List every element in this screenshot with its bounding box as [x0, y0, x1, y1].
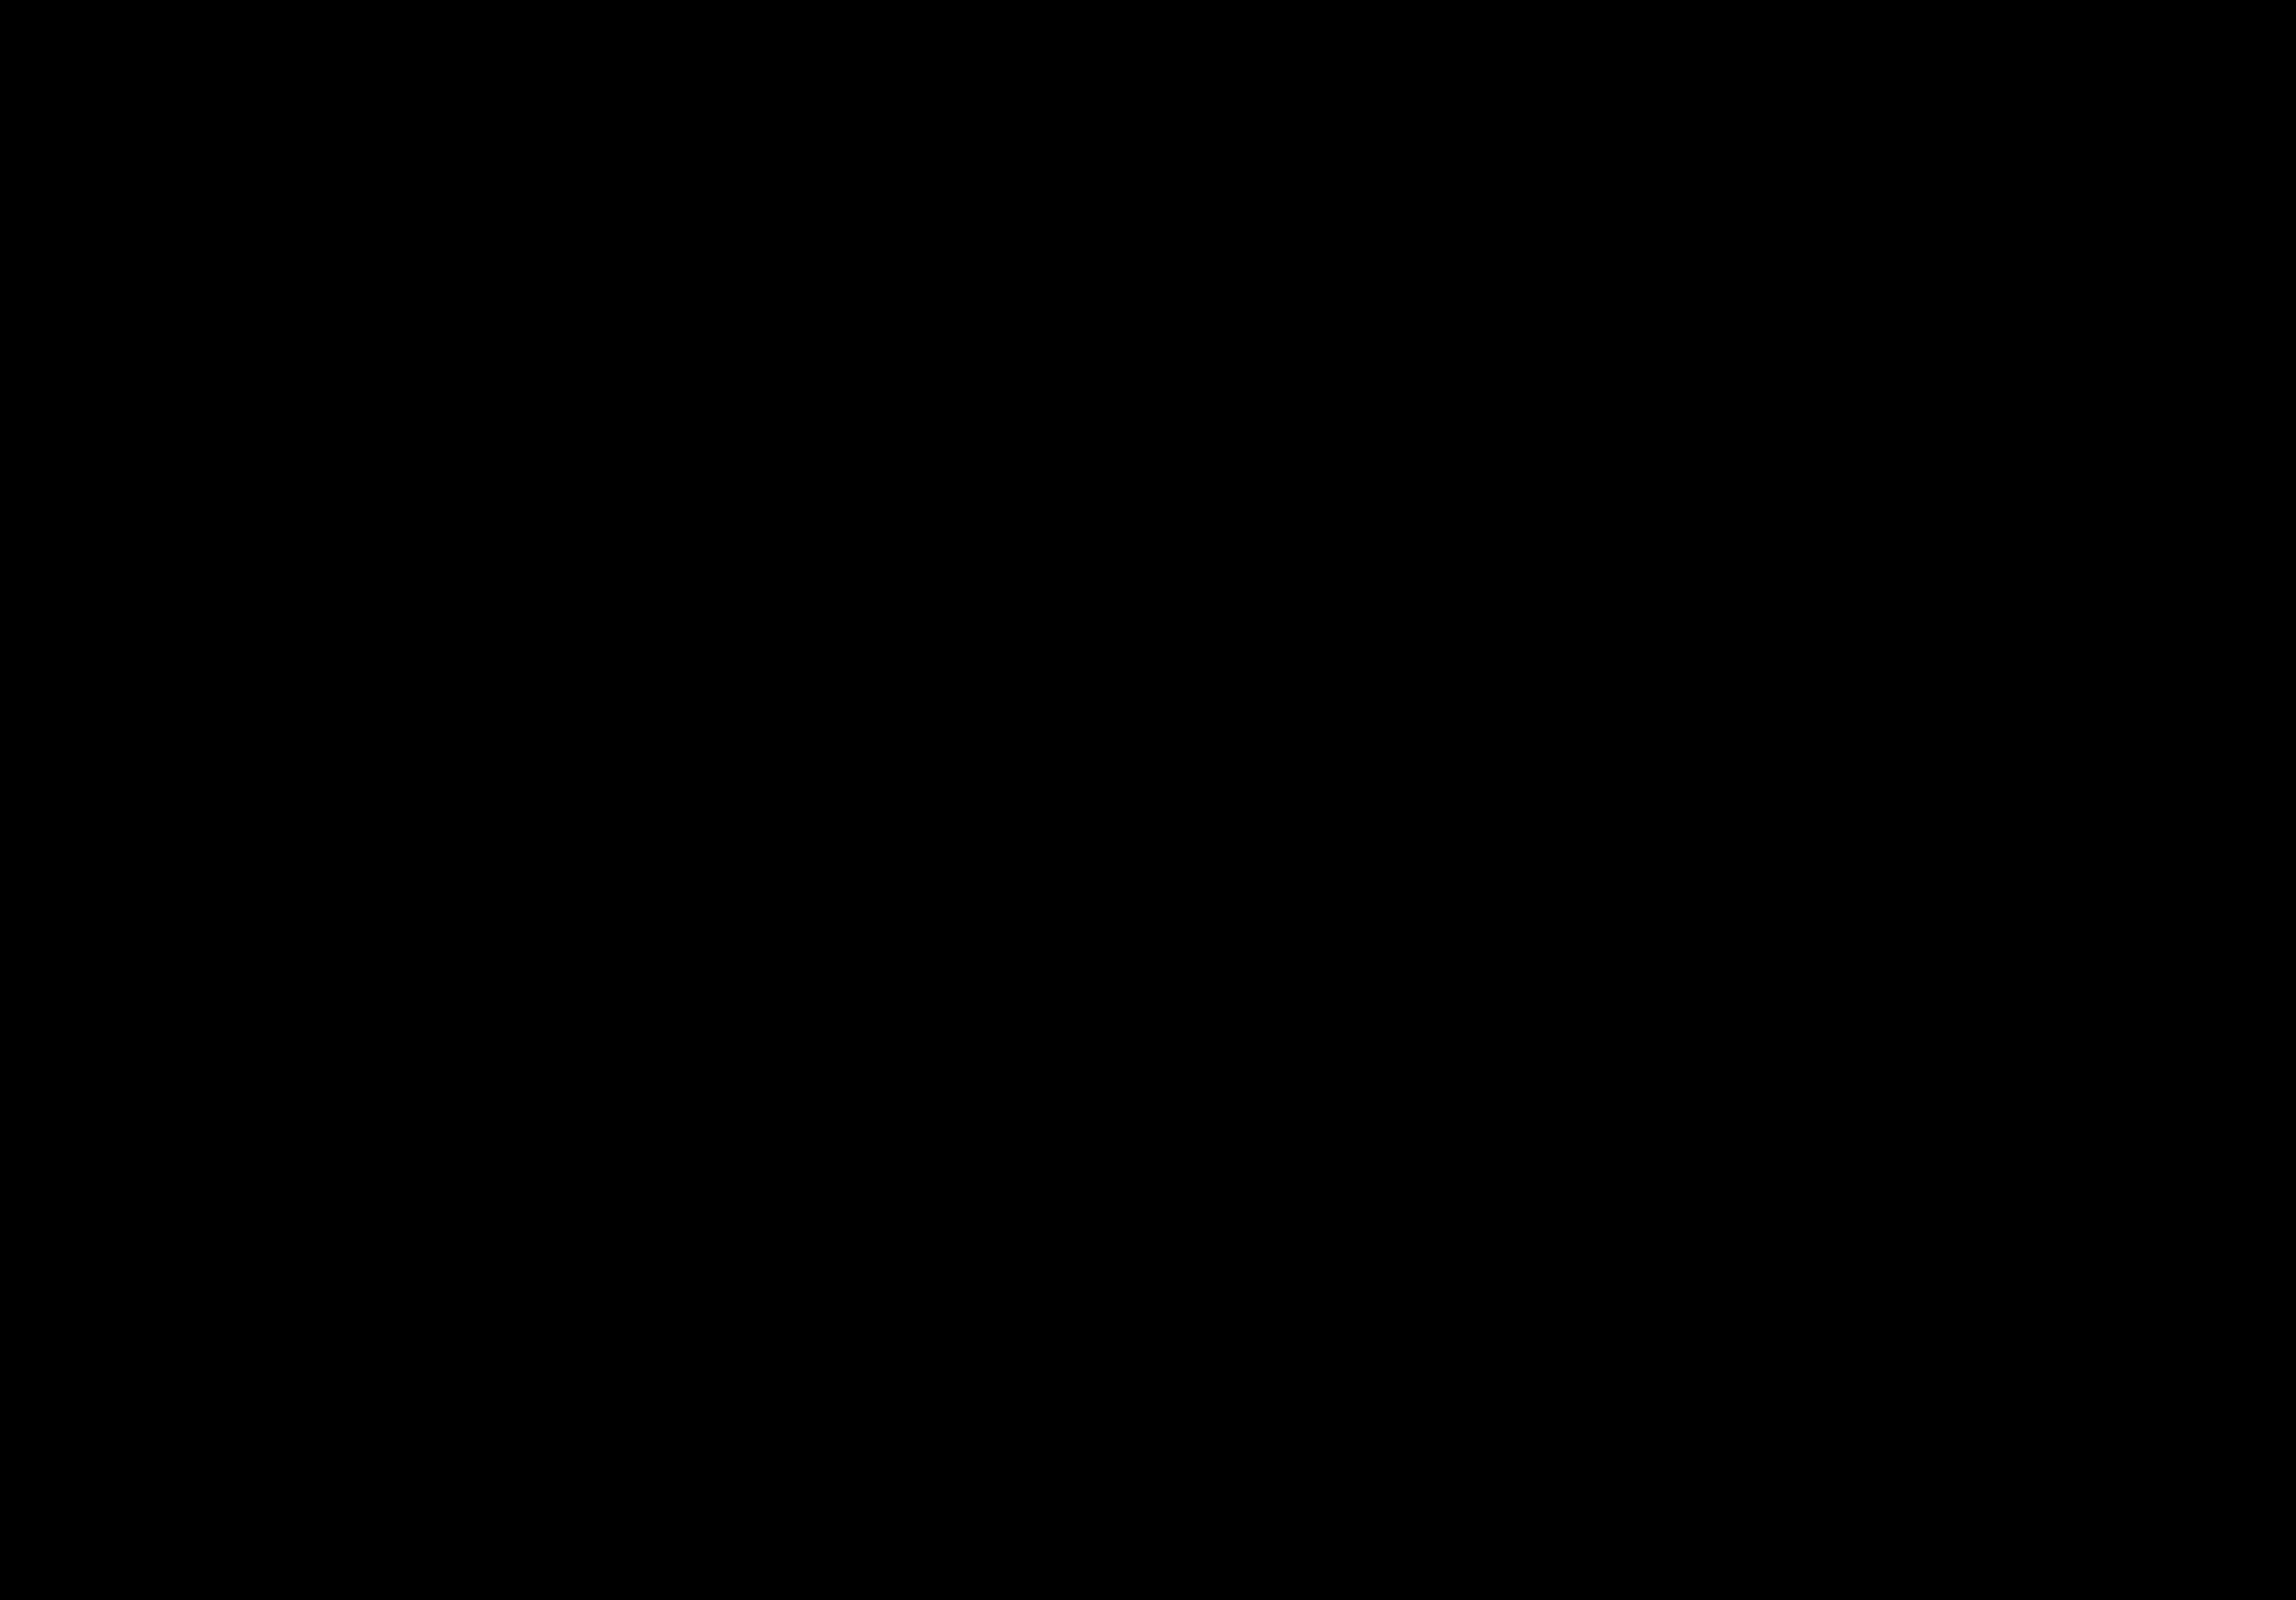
campsite-map-canvas	[0, 0, 2296, 1600]
campsite-map	[0, 0, 2296, 1600]
